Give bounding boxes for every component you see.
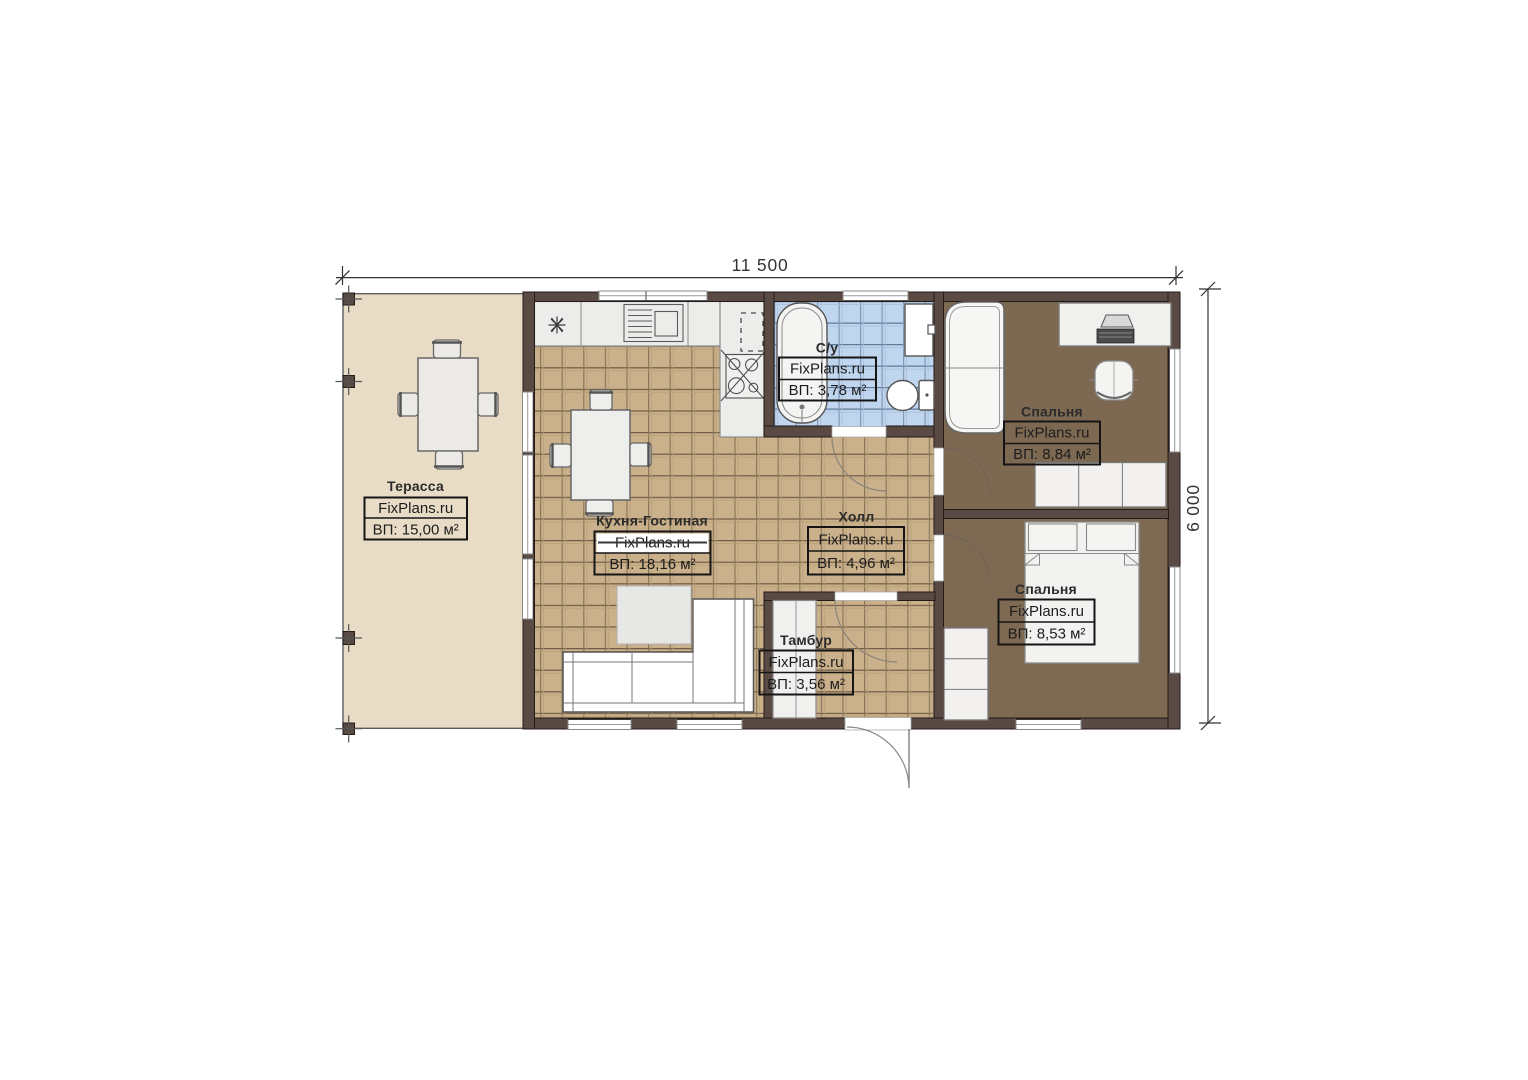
svg-text:Кухня-Гостиная: Кухня-Гостиная [596,513,708,529]
svg-text:6 000: 6 000 [1183,484,1203,532]
svg-text:FixPlans.ru: FixPlans.ru [818,532,893,549]
svg-text:ВП: 18,16 м²: ВП: 18,16 м² [609,556,695,573]
svg-text:Терасса: Терасса [387,478,444,494]
svg-text:FixPlans.ru: FixPlans.ru [1014,425,1089,442]
svg-text:ВП: 3,56 м²: ВП: 3,56 м² [767,676,845,693]
svg-text:ВП: 3,78 м²: ВП: 3,78 м² [789,382,867,399]
svg-text:ВП: 8,53 м²: ВП: 8,53 м² [1008,626,1086,643]
svg-text:С/у: С/у [816,340,838,356]
svg-text:Холл: Холл [839,509,875,525]
svg-text:FixPlans.ru: FixPlans.ru [1009,603,1084,620]
svg-text:Спальня: Спальня [1021,404,1083,420]
svg-text:ВП: 15,00 м²: ВП: 15,00 м² [373,522,459,539]
svg-text:ВП: 4,96 м²: ВП: 4,96 м² [817,555,895,572]
svg-text:FixPlans.ru: FixPlans.ru [768,654,843,671]
svg-text:ВП: 8,84 м²: ВП: 8,84 м² [1013,446,1091,463]
svg-text:Спальня: Спальня [1015,581,1077,597]
svg-text:FixPlans.ru: FixPlans.ru [378,500,453,517]
svg-text:FixPlans.ru: FixPlans.ru [790,361,865,378]
svg-text:11 500: 11 500 [731,255,788,275]
svg-text:Тамбур: Тамбур [780,632,832,648]
